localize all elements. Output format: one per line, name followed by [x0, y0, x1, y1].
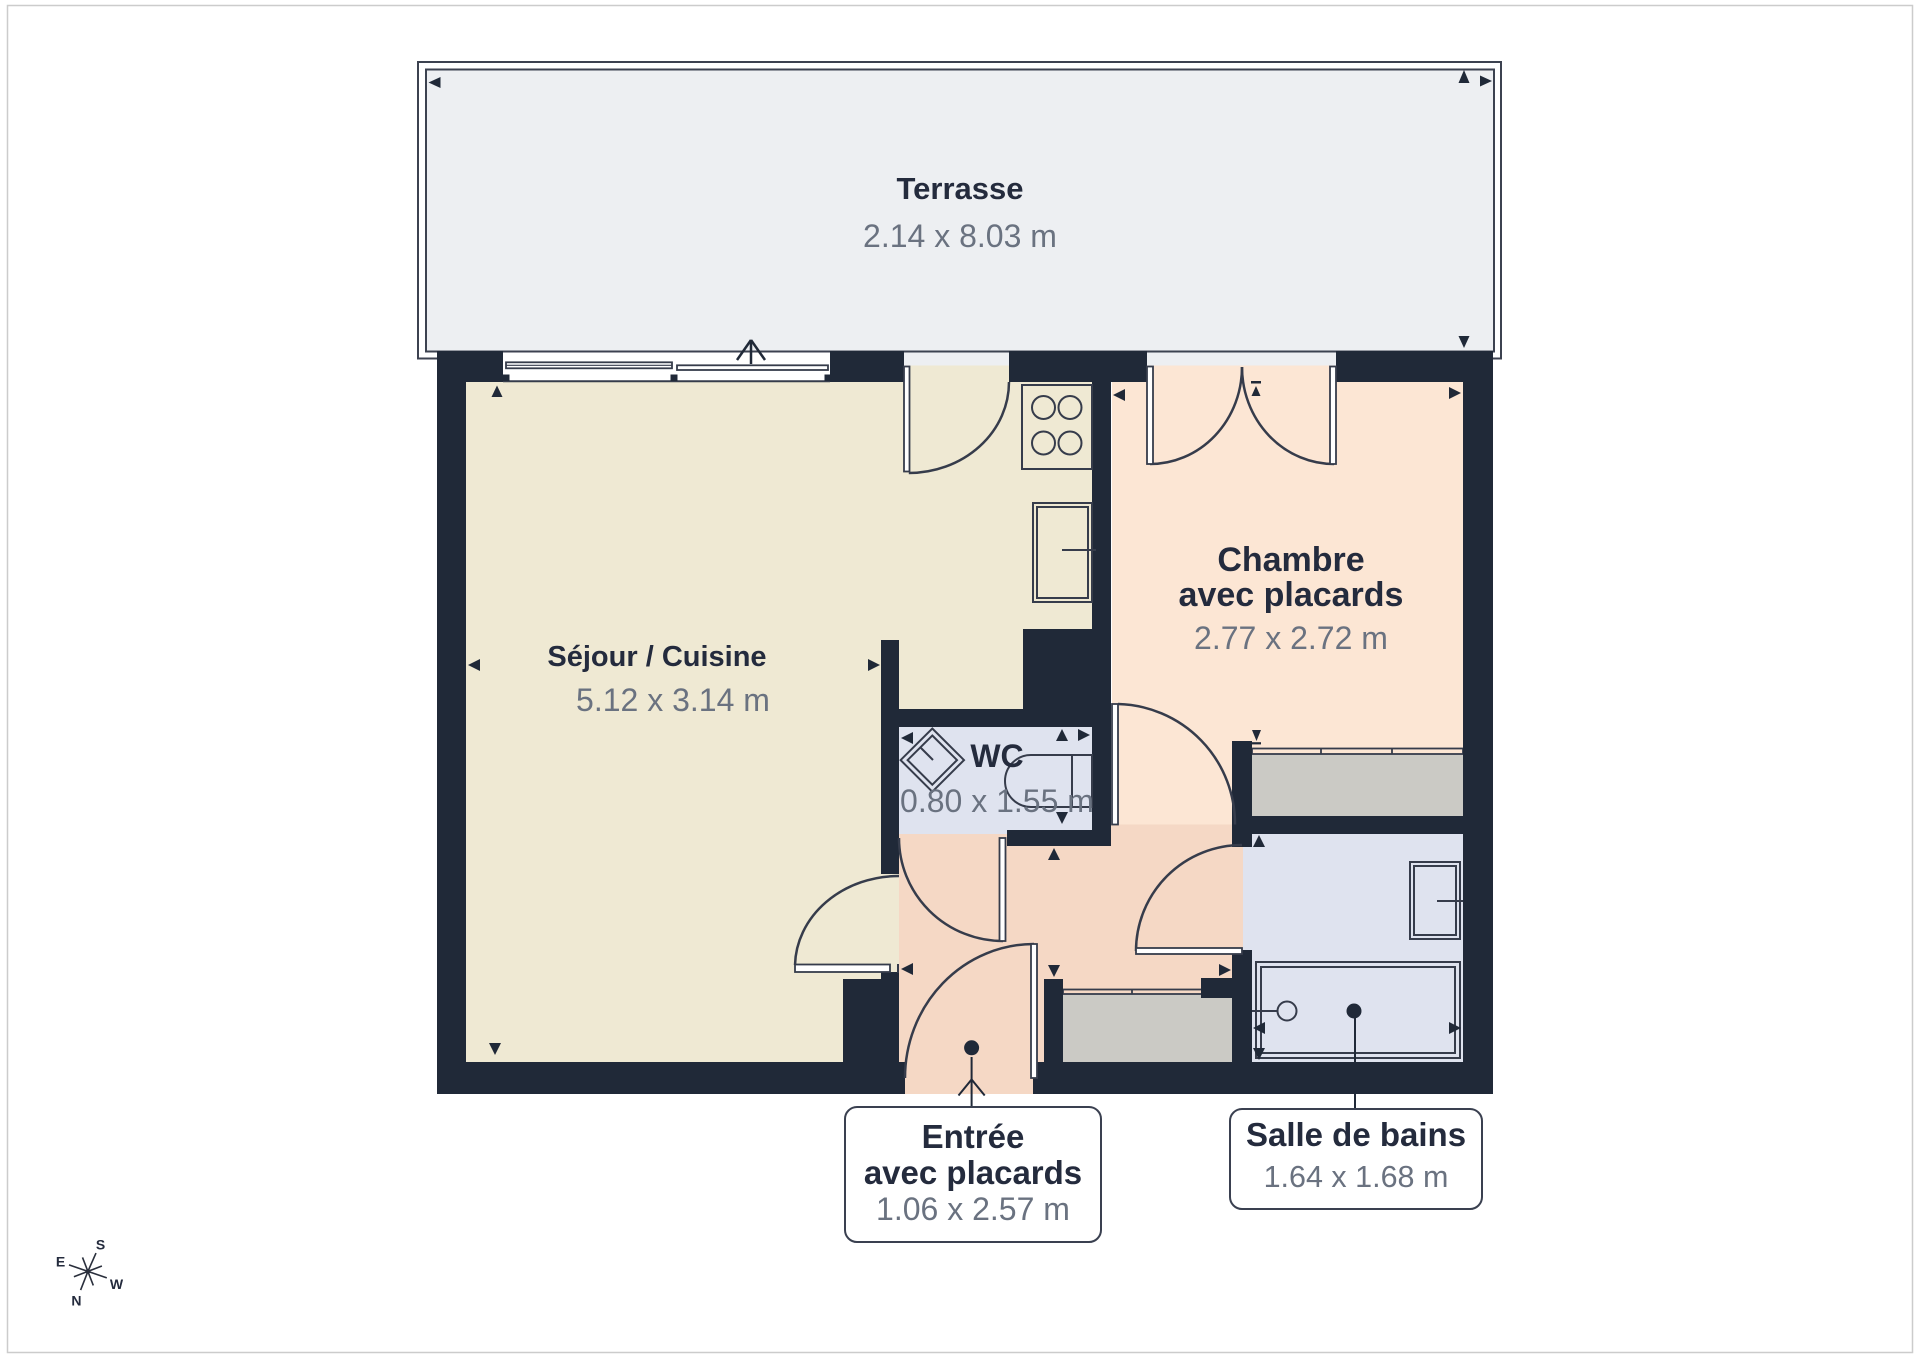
svg-text:Séjour / Cuisine: Séjour / Cuisine — [547, 641, 766, 673]
svg-text:Salle de bains: Salle de bains — [1246, 1116, 1466, 1153]
svg-text:WC: WC — [970, 738, 1023, 774]
svg-text:N: N — [71, 1292, 81, 1308]
svg-text:S: S — [96, 1237, 105, 1253]
svg-text:avec placards: avec placards — [864, 1154, 1082, 1191]
svg-text:1.64 x 1.68 m: 1.64 x 1.68 m — [1264, 1160, 1449, 1194]
svg-text:2.14 x 8.03 m: 2.14 x 8.03 m — [863, 218, 1057, 254]
svg-text:2.77 x 2.72 m: 2.77 x 2.72 m — [1194, 620, 1388, 656]
svg-text:Terrasse: Terrasse — [897, 171, 1024, 206]
svg-text:Chambre: Chambre — [1217, 541, 1364, 579]
svg-text:0.80 x 1.55 m: 0.80 x 1.55 m — [900, 783, 1094, 819]
svg-text:1.06 x 2.57 m: 1.06 x 2.57 m — [876, 1191, 1070, 1227]
svg-text:W: W — [110, 1276, 124, 1292]
svg-text:E: E — [56, 1254, 65, 1270]
svg-text:avec placards: avec placards — [1179, 576, 1404, 614]
svg-text:Entrée: Entrée — [922, 1118, 1025, 1155]
svg-text:5.12 x 3.14 m: 5.12 x 3.14 m — [576, 682, 770, 718]
